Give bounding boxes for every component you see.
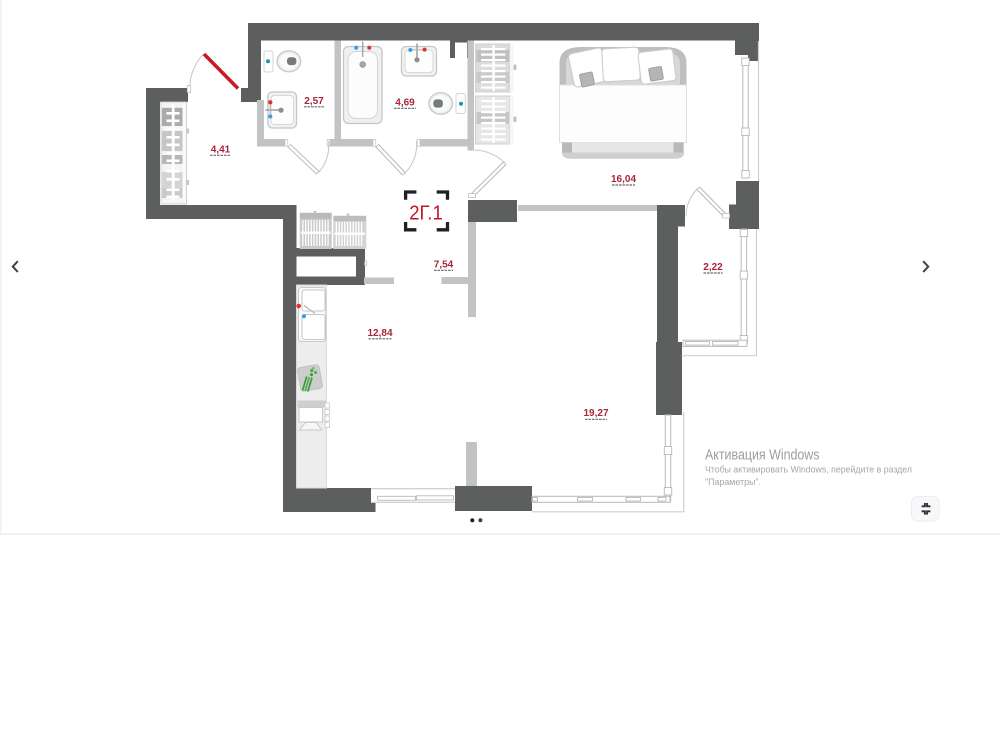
svg-text:2,22: 2,22: [703, 262, 723, 273]
svg-text:2,57: 2,57: [304, 96, 324, 107]
svg-text:Активация Windows: Активация Windows: [705, 448, 820, 464]
svg-text:Чтобы активировать Windows, пе: Чтобы активировать Windows, перейдите в …: [705, 465, 912, 476]
svg-text:4,69: 4,69: [395, 98, 415, 109]
svg-text:7,54: 7,54: [434, 260, 454, 271]
svg-text:"Параметры".: "Параметры".: [705, 477, 761, 488]
svg-text:2Г.1: 2Г.1: [409, 202, 443, 225]
svg-text:12,84: 12,84: [367, 328, 392, 339]
svg-text:19,27: 19,27: [583, 408, 608, 419]
svg-text:16,04: 16,04: [611, 174, 636, 185]
svg-text:4,41: 4,41: [211, 145, 231, 156]
